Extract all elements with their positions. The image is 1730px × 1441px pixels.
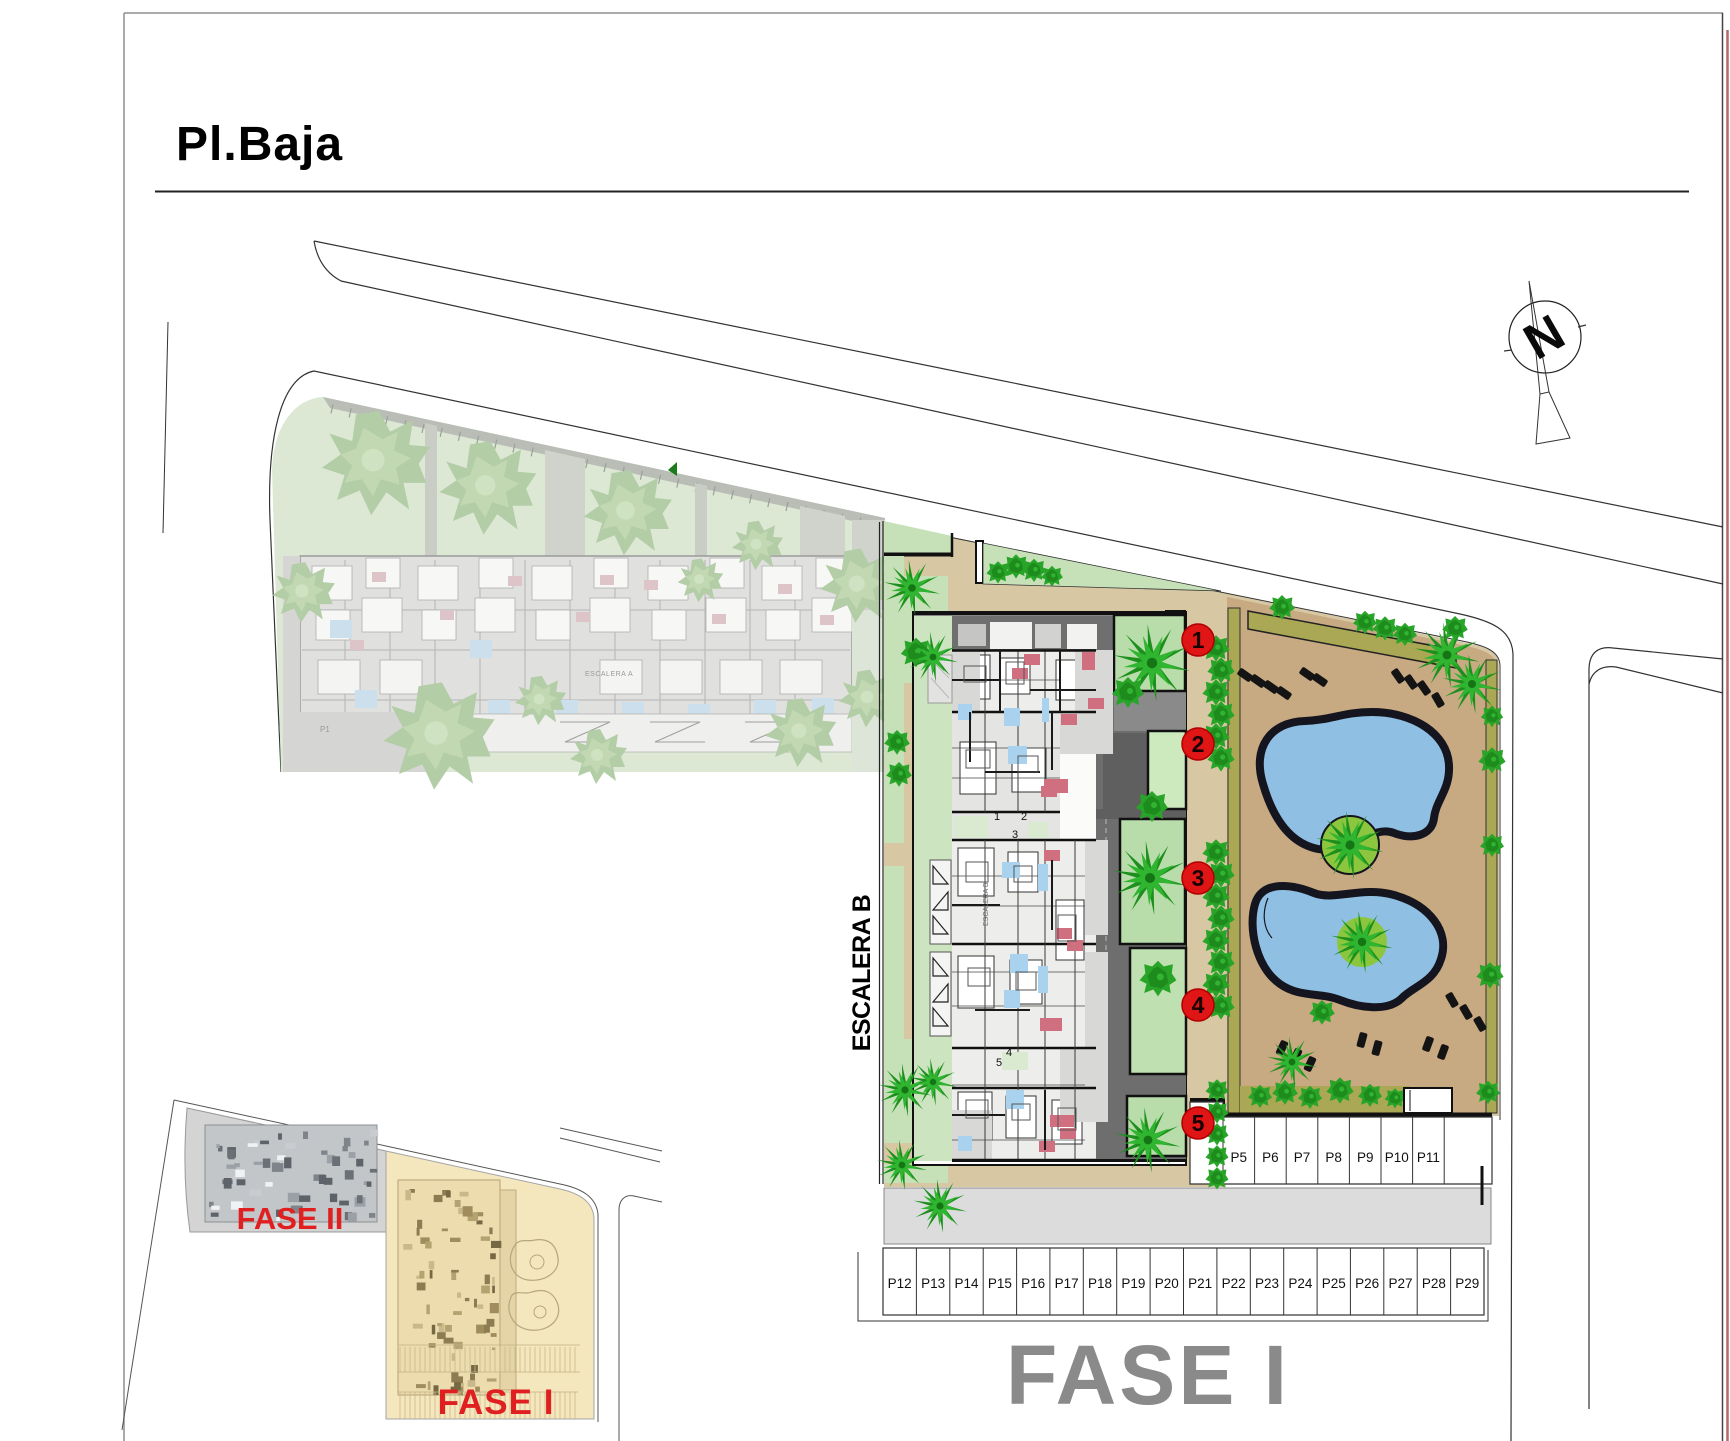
svg-text:P8: P8	[1325, 1150, 1342, 1165]
svg-text:P19: P19	[1121, 1276, 1145, 1291]
svg-text:P13: P13	[921, 1276, 945, 1291]
svg-text:P20: P20	[1155, 1276, 1179, 1291]
svg-text:5: 5	[1192, 1110, 1205, 1136]
svg-text:P11: P11	[1417, 1150, 1440, 1165]
svg-text:4: 4	[1192, 992, 1205, 1018]
svg-text:P10: P10	[1385, 1150, 1409, 1165]
svg-text:FASE I: FASE I	[438, 1383, 555, 1422]
svg-text:P26: P26	[1355, 1276, 1379, 1291]
svg-text:P15: P15	[988, 1276, 1012, 1291]
svg-text:P16: P16	[1021, 1276, 1045, 1291]
svg-text:P7: P7	[1294, 1150, 1311, 1165]
svg-text:P23: P23	[1255, 1276, 1279, 1291]
svg-text:P14: P14	[954, 1276, 979, 1291]
svg-text:P17: P17	[1055, 1276, 1079, 1291]
svg-text:ESCALERA B: ESCALERA B	[983, 882, 990, 926]
svg-text:P29: P29	[1455, 1276, 1479, 1291]
svg-text:P25: P25	[1322, 1276, 1346, 1291]
svg-text:2: 2	[1192, 731, 1205, 757]
svg-text:1: 1	[994, 811, 1000, 823]
svg-text:1: 1	[1192, 627, 1205, 653]
svg-text:ESCALERA A: ESCALERA A	[585, 671, 633, 678]
svg-text:ESCALERA B: ESCALERA B	[848, 895, 876, 1052]
svg-text:3: 3	[1012, 829, 1018, 841]
svg-text:P6: P6	[1262, 1150, 1279, 1165]
svg-text:2: 2	[1021, 811, 1027, 823]
svg-text:P22: P22	[1222, 1276, 1246, 1291]
svg-text:5: 5	[996, 1057, 1002, 1069]
svg-text:4: 4	[1006, 1047, 1012, 1059]
svg-text:P18: P18	[1088, 1276, 1112, 1291]
svg-text:Pl.Baja: Pl.Baja	[176, 118, 343, 171]
svg-text:P12: P12	[888, 1276, 912, 1291]
svg-text:P5: P5	[1231, 1150, 1248, 1165]
svg-text:P1: P1	[320, 725, 330, 734]
svg-text:P9: P9	[1357, 1150, 1374, 1165]
svg-text:3: 3	[1192, 865, 1205, 891]
svg-text:P27: P27	[1388, 1276, 1412, 1291]
svg-text:FASE I: FASE I	[1006, 1328, 1290, 1422]
svg-text:P28: P28	[1422, 1276, 1446, 1291]
svg-text:P21: P21	[1188, 1276, 1212, 1291]
svg-text:FASE II: FASE II	[237, 1201, 344, 1236]
svg-text:P24: P24	[1288, 1276, 1313, 1291]
